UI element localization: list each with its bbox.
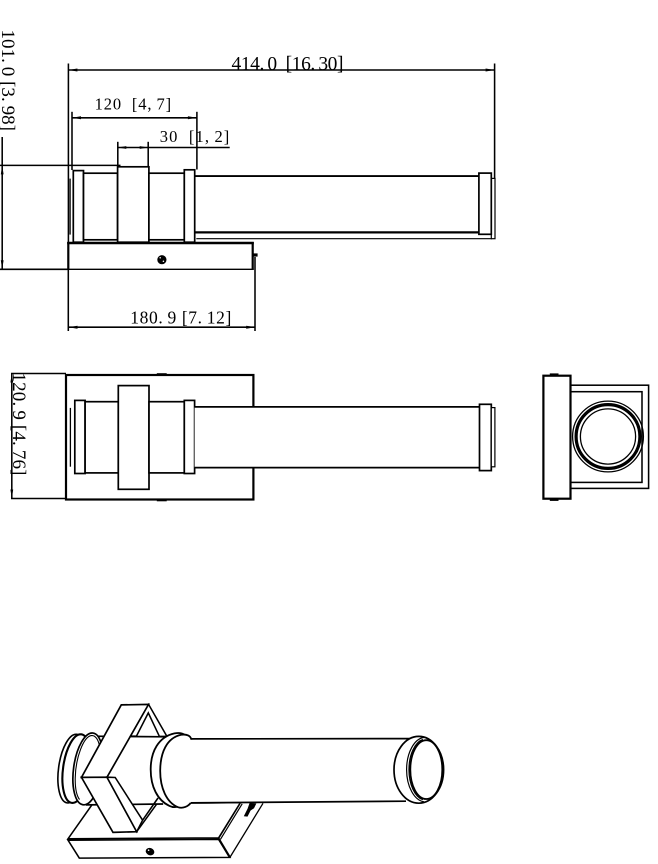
svg-text:30 [1, 2]: 30 [1, 2]: [160, 127, 230, 146]
svg-text:120. 9 [4. 76]: 120. 9 [4. 76]: [8, 373, 29, 476]
svg-text:180. 9 [7. 12]: 180. 9 [7. 12]: [130, 307, 231, 327]
svg-text:414. 0 [16. 30]: 414. 0 [16. 30]: [232, 54, 344, 75]
svg-text:101. 0 [3. 98]: 101. 0 [3. 98]: [0, 30, 18, 132]
svg-text:120 [4, 7]: 120 [4, 7]: [95, 95, 172, 114]
